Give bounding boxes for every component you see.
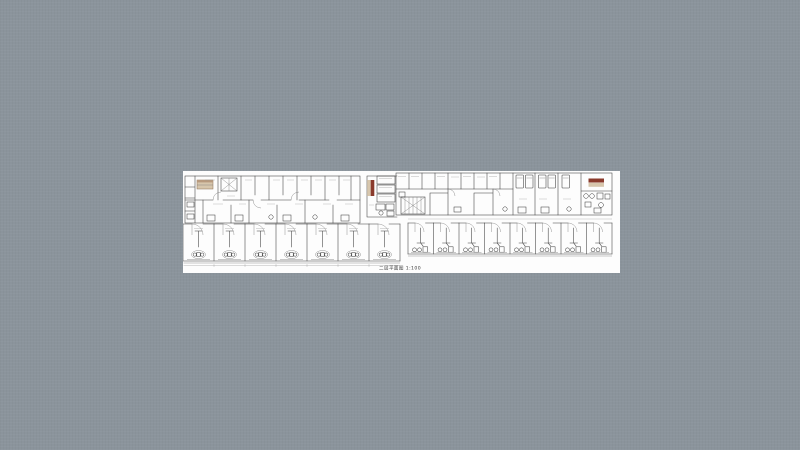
right-shaft-highlight <box>589 179 605 183</box>
page-background: { "page": { "background_color": "#8b949c… <box>0 0 800 450</box>
right-shaft-hatch <box>589 183 605 187</box>
lower-left-rooms <box>183 224 400 267</box>
drawing-canvas: 二层平面图 1:100 <box>183 171 620 273</box>
stairwell-right <box>401 197 425 214</box>
shaft-wall-hatch <box>367 180 371 196</box>
upper-left-wing <box>185 176 360 223</box>
lower-right-rooms <box>408 219 612 256</box>
core-shaft <box>367 176 397 217</box>
wall-hatch-topleft-cap <box>197 180 213 182</box>
upper-right-wing <box>396 173 612 215</box>
stairwell-left <box>221 178 237 191</box>
drawing-caption: 二层平面图 1:100 <box>379 266 421 272</box>
floor-plan: 二层平面图 1:100 <box>183 171 620 273</box>
shaft-wall-highlight <box>371 180 375 196</box>
